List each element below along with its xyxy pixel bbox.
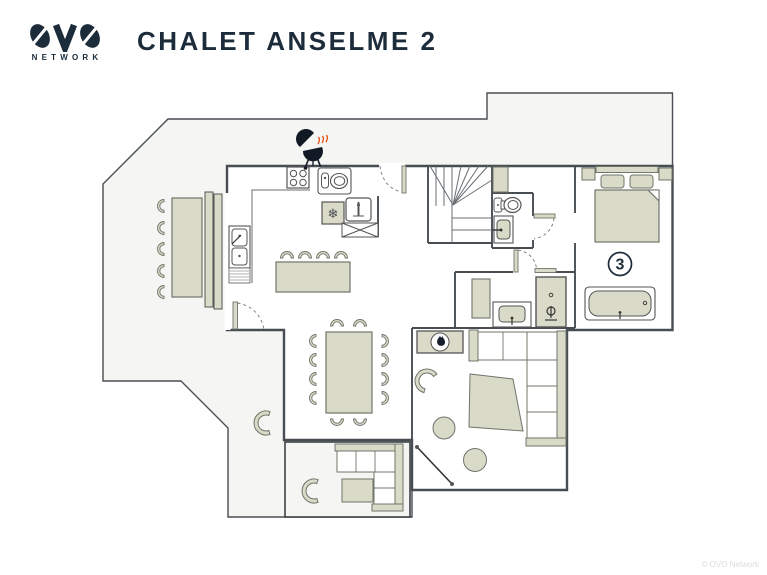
ensuite-washbasin [493, 302, 531, 327]
freezer: ❄ [322, 202, 344, 224]
pouf [433, 417, 455, 439]
bedside-table-left [582, 168, 595, 180]
page: NETWORK CHALET ANSELME 2 [0, 0, 767, 575]
copyright-watermark: © OVO Network [702, 560, 759, 569]
kitchen-stove [287, 167, 309, 188]
fireplace [417, 331, 463, 353]
bathtub [585, 287, 655, 320]
wc-washbasin [492, 216, 513, 243]
hall-closet [493, 167, 508, 192]
pouf [464, 449, 487, 472]
kitchen-storage-unit [342, 223, 378, 237]
dining-table [326, 332, 372, 413]
ottoman [342, 479, 373, 502]
kitchen-wall-sink [229, 226, 250, 283]
room-number: 3 [616, 257, 625, 274]
kitchen-sink [318, 168, 351, 194]
snowflake-icon: ❄ [328, 206, 339, 221]
wc-toilet [494, 198, 521, 213]
oven [346, 198, 371, 221]
wardrobe [472, 279, 490, 318]
terrace-sliding-door [205, 192, 222, 309]
bedside-table-right [659, 168, 672, 180]
room-number-badge: 3 [609, 253, 632, 276]
floor-plan: ❄ [0, 0, 767, 575]
shower [536, 277, 566, 327]
